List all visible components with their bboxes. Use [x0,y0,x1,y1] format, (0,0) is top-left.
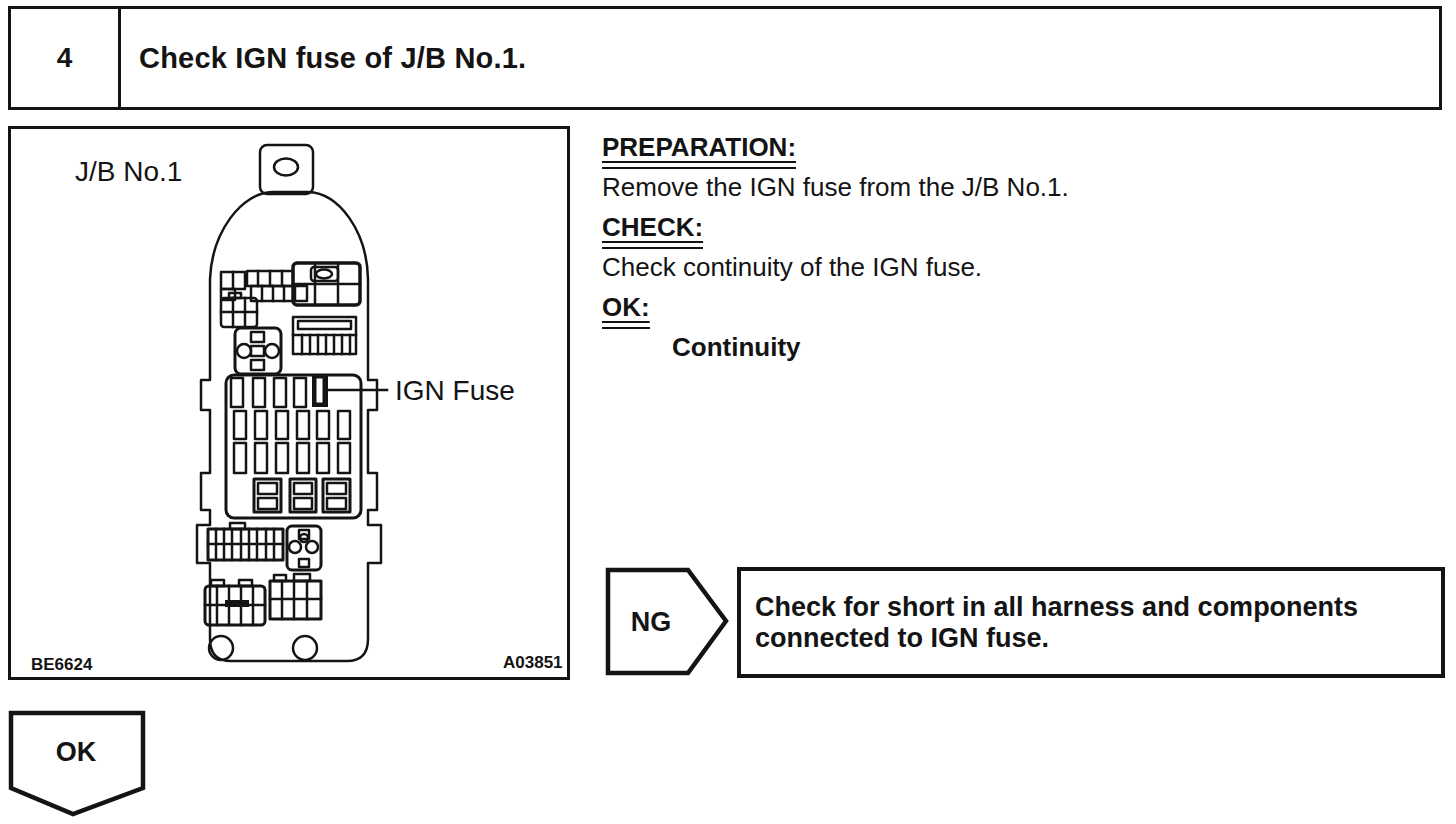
junction-block-diagram: J/B No.1 IGN Fuse BE6624 A03851 [11,129,567,677]
connector-bottom-left [205,580,265,625]
step-header: 4 Check IGN fuse of J/B No.1. [8,6,1442,110]
relay-block-upper-right [293,263,360,305]
figure-code-left: BE6624 [31,655,93,674]
ok-heading: OK: [602,290,650,329]
instructions: PREPARATION: Remove the IGN fuse from th… [602,130,1202,370]
ok-label: OK [56,737,97,767]
mounting-hole-right [293,636,317,660]
mounting-tab [260,145,313,194]
ng-action-box: Check for short in all harness and compo… [737,567,1445,678]
connector-long-strip [208,523,283,560]
ng-label: NG [631,607,672,637]
figure-box: J/B No.1 IGN Fuse BE6624 A03851 [8,126,570,680]
ign-fuse-highlight [312,374,328,407]
fuse-panel [226,375,361,518]
step-number: 4 [11,9,121,107]
ok-result: Continuity [602,330,1202,370]
ok-arrow-icon: OK [8,710,150,818]
check-body: Check continuity of the IGN fuse. [602,250,1202,290]
figure-code-right: A03851 [503,653,563,672]
jb-label: J/B No.1 [75,156,182,187]
connector-mid-right [293,317,356,354]
connector-square-right [287,526,321,570]
connector-square-left [235,328,281,374]
preparation-heading: PREPARATION: [602,130,796,169]
connector-mid-left [221,293,257,327]
connector-upper-middle [247,271,307,301]
ng-action-line2: connected to IGN fuse. [755,623,1441,654]
manual-page: 4 Check IGN fuse of J/B No.1. [0,0,1456,824]
connector-bottom-right [270,574,321,619]
step-title: Check IGN fuse of J/B No.1. [121,9,1439,107]
mounting-hole-left [209,636,233,660]
preparation-body: Remove the IGN fuse from the J/B No.1. [602,170,1202,210]
ng-arrow-icon: NG [605,567,729,676]
check-heading: CHECK: [602,210,703,249]
ign-fuse-label: IGN Fuse [395,375,515,406]
ng-action-line1: Check for short in all harness and compo… [755,592,1441,623]
